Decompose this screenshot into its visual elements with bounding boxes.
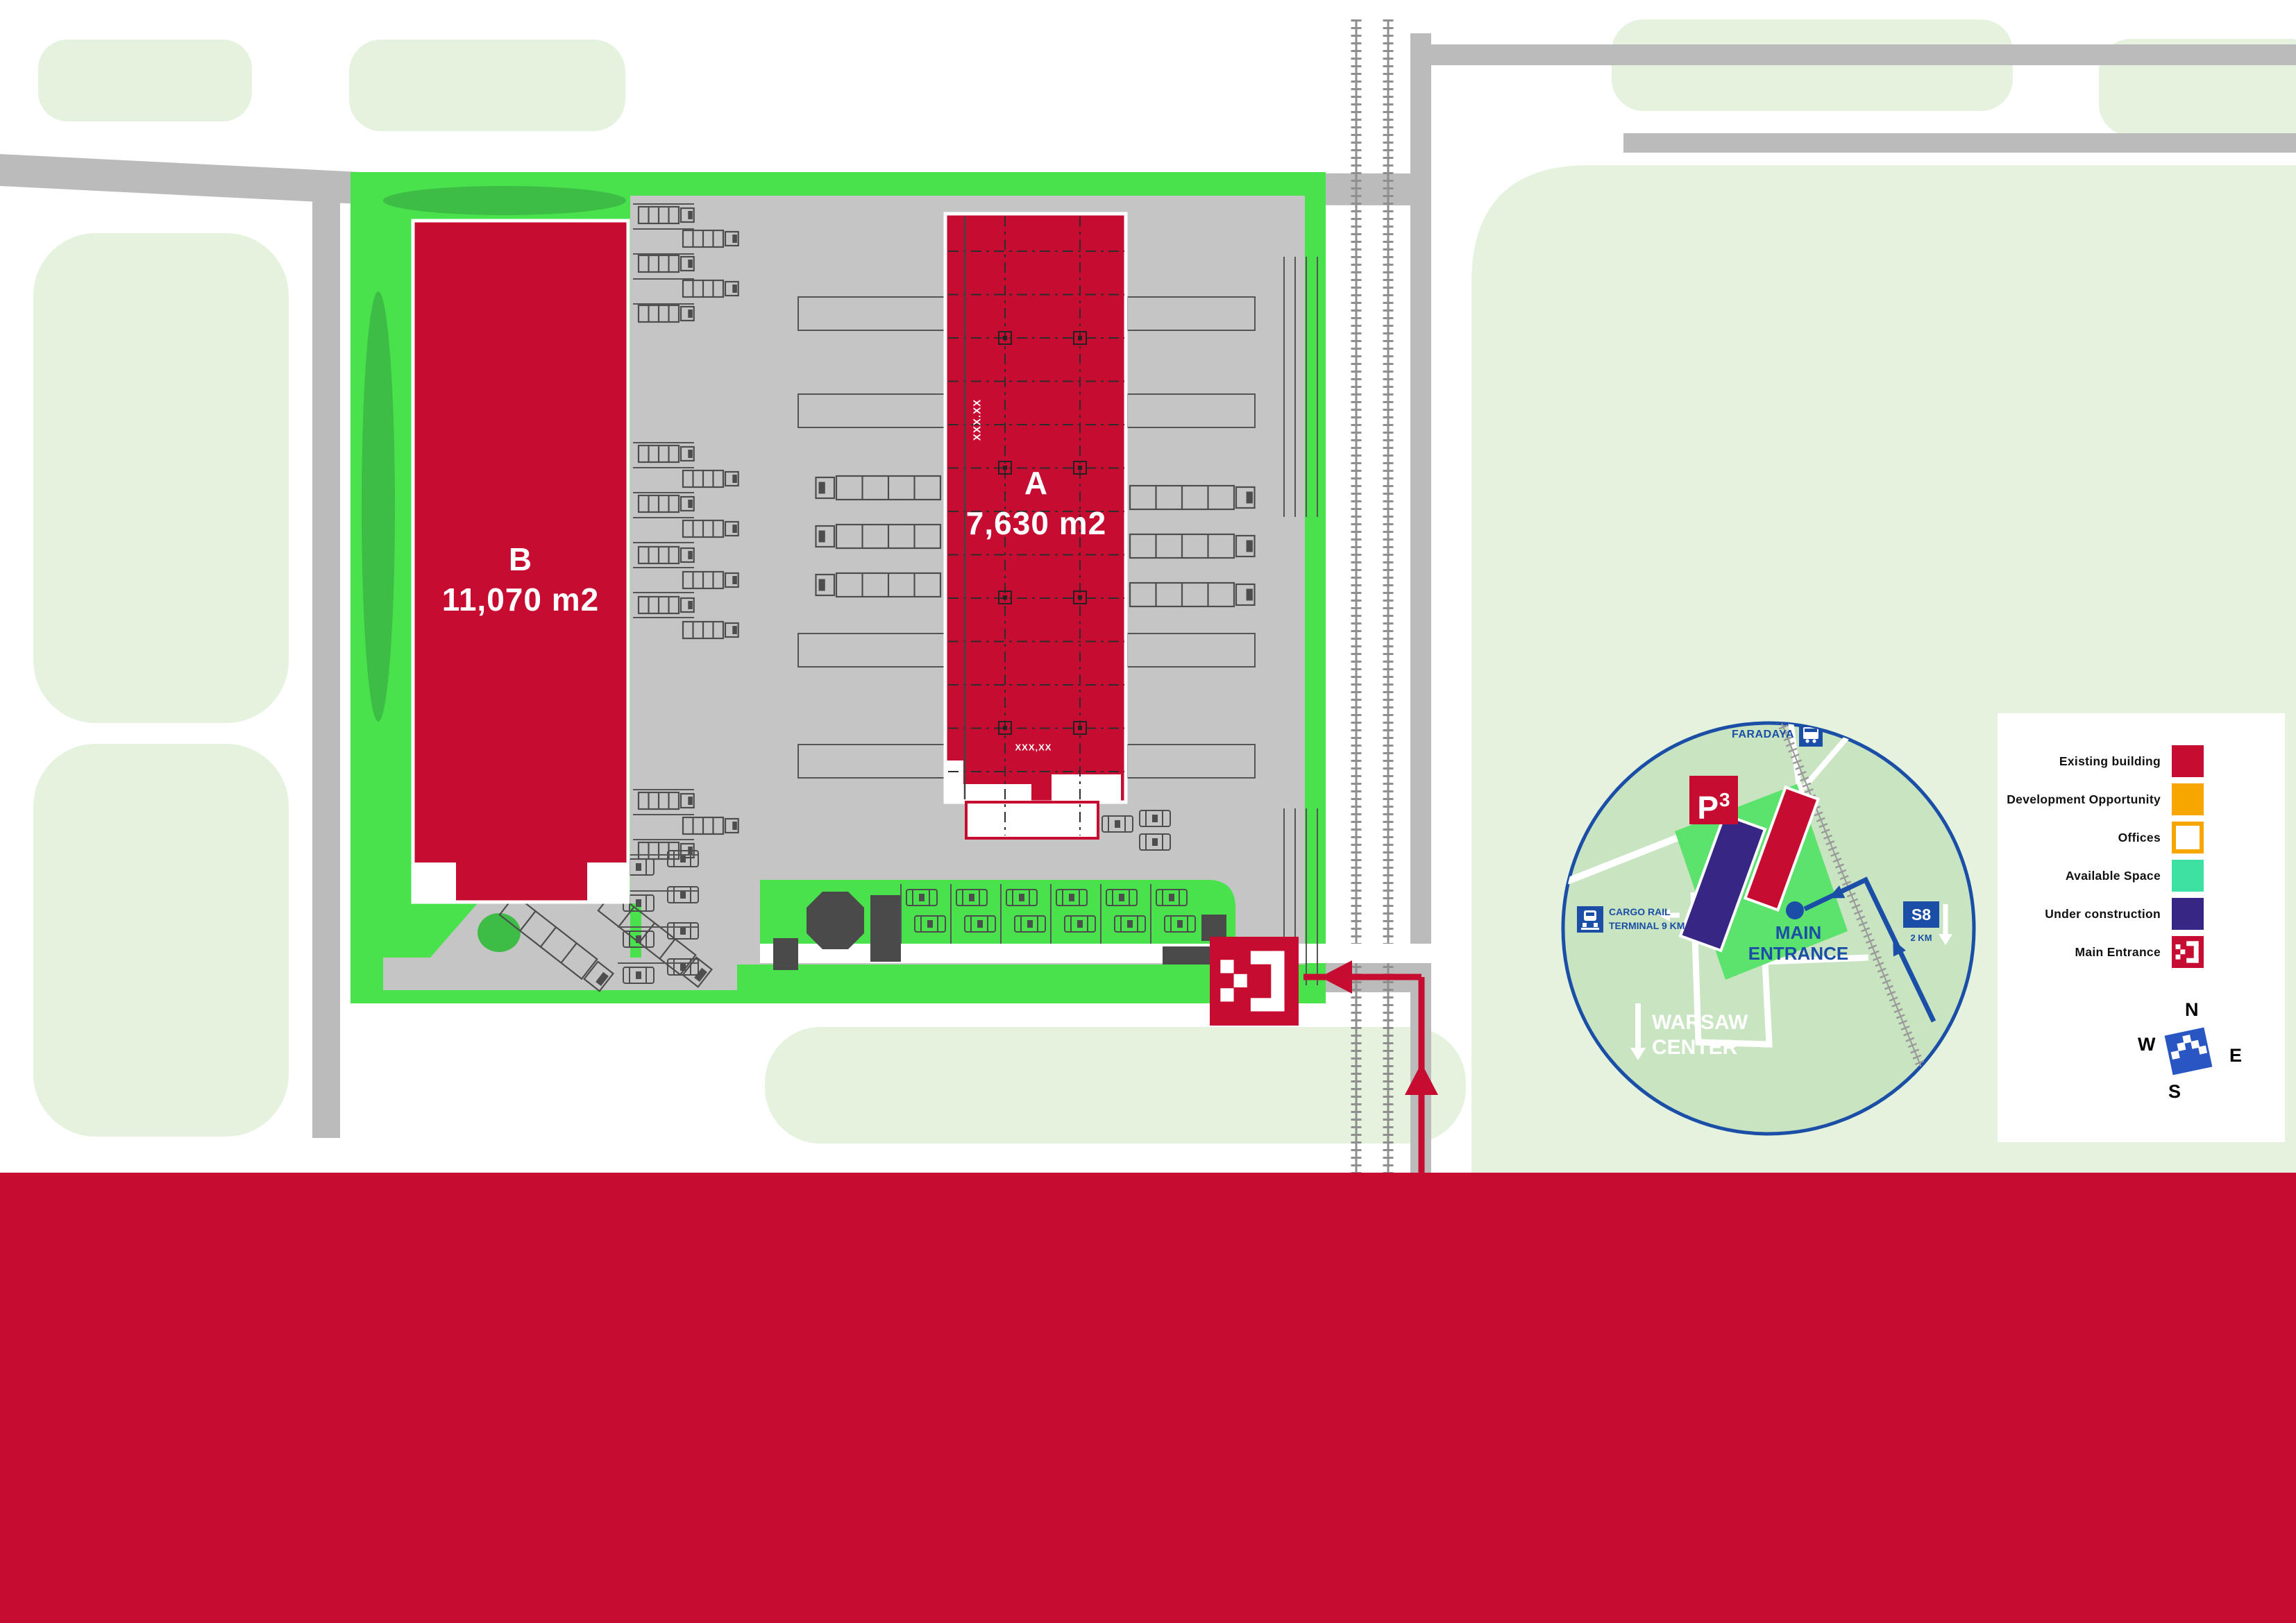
- building-a-dim-note-vertical: XXX.XX: [972, 399, 984, 441]
- building-a-label: A 7,630 m2: [966, 464, 1106, 543]
- compass-south: S: [2168, 1081, 2181, 1103]
- utility-building-2: [1163, 946, 1210, 965]
- minimap-station-label: FARADAYA: [1687, 729, 1794, 741]
- right-road: [1623, 133, 2296, 153]
- legend-swatch: [2172, 745, 2204, 777]
- legend-item-label: Existing building: [2059, 754, 2161, 769]
- legend-panel: Existing buildingDevelopment Opportunity…: [1998, 713, 2285, 1142]
- legend-swatch: [2172, 822, 2204, 853]
- legend-swatch: [2172, 783, 2204, 815]
- pump-house: [773, 938, 798, 970]
- building-b-office-notch: [414, 863, 456, 902]
- building-a-dim-note-bottom: XXX,XX: [1015, 742, 1052, 753]
- building-a-office-notch: [945, 784, 1031, 802]
- main-entrance-icon: [2172, 936, 2204, 968]
- train-icon: [1577, 906, 1603, 933]
- legend-swatch: [2172, 898, 2204, 930]
- compass-north: N: [2185, 999, 2199, 1021]
- minimap-cargo-label: CARGO RAIL TERMINAL 9 KM: [1609, 905, 1685, 933]
- main-entrance-icon: [1210, 937, 1299, 1026]
- building-b-area: 11,070 m2: [442, 580, 599, 620]
- utility-building: [870, 895, 901, 962]
- building-b-label: B 11,070 m2: [442, 540, 599, 620]
- legend-rows: Existing buildingDevelopment Opportunity…: [1998, 745, 2285, 968]
- minimap-main-entrance-label: MAIN ENTRANCE: [1739, 923, 1858, 965]
- legend-swatch: [2172, 860, 2204, 892]
- site-plan-page: B 11,070 m2 A 7,630 m2 XXX.XX XXX,XX FAR…: [0, 0, 2296, 1623]
- minimap-s8-distance: 2 KM: [1903, 933, 1939, 943]
- building-b-office-notch: [587, 863, 628, 902]
- legend-item: Under construction: [1998, 898, 2285, 930]
- building-a-office-annex: [966, 802, 1098, 838]
- building-a-office-notch: [1052, 774, 1121, 802]
- top-right-road: [1421, 44, 2296, 65]
- sprinkler-tank: [807, 892, 864, 949]
- footer-red-band: [0, 1173, 2296, 1623]
- compass-west: W: [2138, 1034, 2155, 1055]
- legend-item: Development Opportunity: [1998, 783, 2285, 815]
- p3-logo: P3: [1689, 776, 1738, 824]
- legend-item-label: Offices: [2118, 831, 2161, 845]
- legend-item-label: Main Entrance: [2075, 945, 2161, 960]
- legend-item: Main Entrance: [1998, 936, 2285, 968]
- minimap-warsaw-label: WARSAW CENTER: [1652, 1010, 1748, 1060]
- minimap-s8-badge: S8: [1903, 901, 1939, 928]
- legend-item: Offices: [1998, 822, 2285, 853]
- minimap-entrance-dot: [1786, 901, 1804, 919]
- west-access-road: [312, 194, 340, 1138]
- compass-rose-icon: [2165, 1028, 2213, 1076]
- legend-item: Available Space: [1998, 860, 2285, 892]
- compass-east: E: [2229, 1045, 2242, 1067]
- compass: N W E S: [2138, 999, 2256, 1117]
- legend-item-label: Development Opportunity: [2007, 792, 2161, 807]
- legend-item-label: Under construction: [2045, 907, 2161, 921]
- building-a-area: 7,630 m2: [966, 504, 1106, 544]
- legend-item: Existing building: [1998, 745, 2285, 777]
- legend-item-label: Available Space: [2066, 869, 2161, 883]
